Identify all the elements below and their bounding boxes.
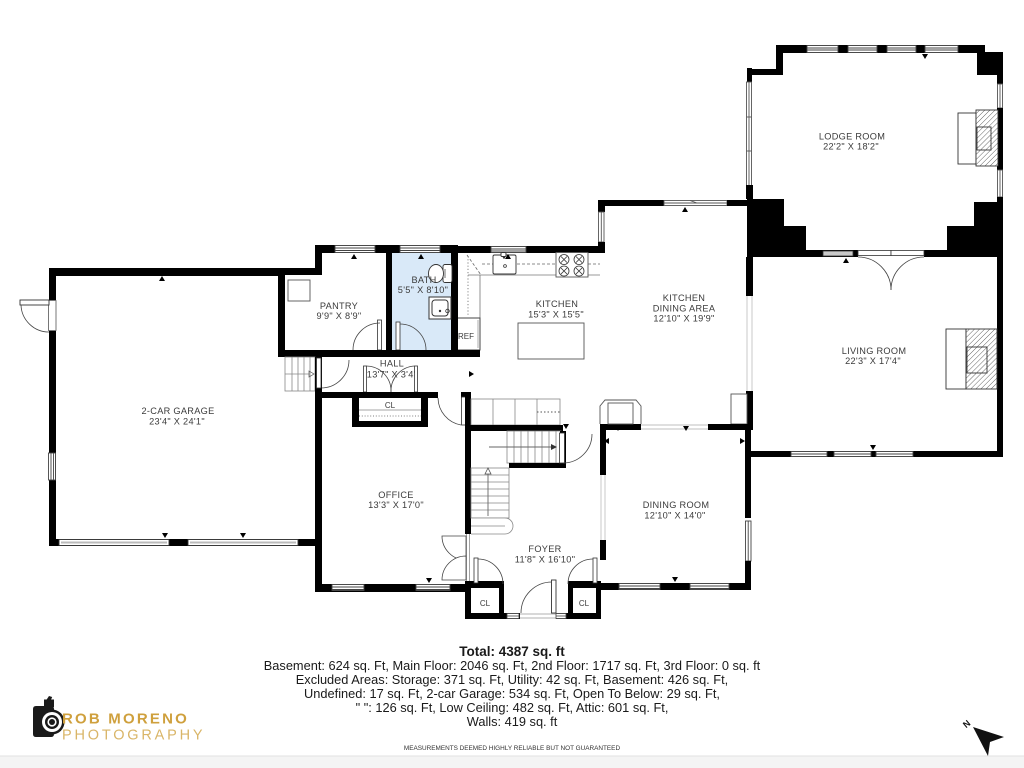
svg-text:OFFICE: OFFICE: [378, 490, 414, 500]
svg-text:LIVING ROOM: LIVING ROOM: [842, 346, 907, 356]
svg-text:9'9" X 8'9": 9'9" X 8'9": [316, 311, 361, 321]
svg-text:CL: CL: [385, 401, 396, 410]
svg-text:Undefined: 17 sq. Ft, 2-car Ga: Undefined: 17 sq. Ft, 2-car Garage: 534 …: [304, 686, 720, 701]
svg-text:PANTRY: PANTRY: [320, 301, 358, 311]
svg-text:11'8" X 16'10": 11'8" X 16'10": [515, 555, 576, 565]
svg-text:KITCHEN: KITCHEN: [663, 293, 705, 303]
svg-text:BATH: BATH: [411, 275, 436, 285]
svg-text:Excluded Areas: Storage: 371 s: Excluded Areas: Storage: 371 sq. Ft, Uti…: [296, 672, 728, 687]
svg-text:CL: CL: [579, 599, 590, 608]
svg-text:DINING ROOM: DINING ROOM: [643, 500, 710, 510]
svg-text:LODGE ROOM: LODGE ROOM: [819, 132, 885, 142]
svg-text:13'3" X 17'0": 13'3" X 17'0": [368, 500, 424, 510]
svg-text:Walls: 419 sq. ft: Walls: 419 sq. ft: [467, 714, 558, 729]
svg-text:23'4" X 24'1": 23'4" X 24'1": [149, 417, 205, 427]
svg-text:22'2" X 18'2": 22'2" X 18'2": [823, 142, 879, 152]
svg-text:CL: CL: [480, 599, 491, 608]
svg-text:22'3" X 17'4": 22'3" X 17'4": [845, 356, 901, 366]
svg-text:REF: REF: [458, 332, 474, 341]
svg-text:" ": 126 sq. Ft, Low Ceiling:: " ": 126 sq. Ft, Low Ceiling: 482 sq. Ft…: [356, 700, 669, 715]
svg-text:ROB MORENO: ROB MORENO: [62, 711, 189, 728]
svg-text:15'3" X 15'5": 15'3" X 15'5": [528, 310, 584, 320]
svg-text:MEASUREMENTS DEEMED HIGHLY REL: MEASUREMENTS DEEMED HIGHLY RELIABLE BUT …: [404, 745, 621, 752]
svg-text:PHOTOGRAPHY: PHOTOGRAPHY: [62, 728, 205, 744]
svg-text:12'10" X 14'0": 12'10" X 14'0": [644, 511, 705, 521]
svg-text:DINING AREA: DINING AREA: [653, 304, 716, 314]
svg-text:2-CAR GARAGE: 2-CAR GARAGE: [141, 406, 214, 416]
svg-text:Total: 4387 sq. ft: Total: 4387 sq. ft: [459, 644, 565, 659]
svg-text:5'5" X 8'10": 5'5" X 8'10": [398, 285, 448, 295]
svg-text:HALL: HALL: [380, 359, 404, 369]
svg-text:KITCHEN: KITCHEN: [536, 299, 578, 309]
svg-text:12'10" X 19'9": 12'10" X 19'9": [653, 314, 714, 324]
svg-text:13'7" X 3'4": 13'7" X 3'4": [367, 370, 417, 380]
svg-text:FOYER: FOYER: [528, 544, 561, 554]
svg-text:Basement: 624 sq. Ft, Main Flo: Basement: 624 sq. Ft, Main Floor: 2046 s…: [264, 658, 761, 673]
